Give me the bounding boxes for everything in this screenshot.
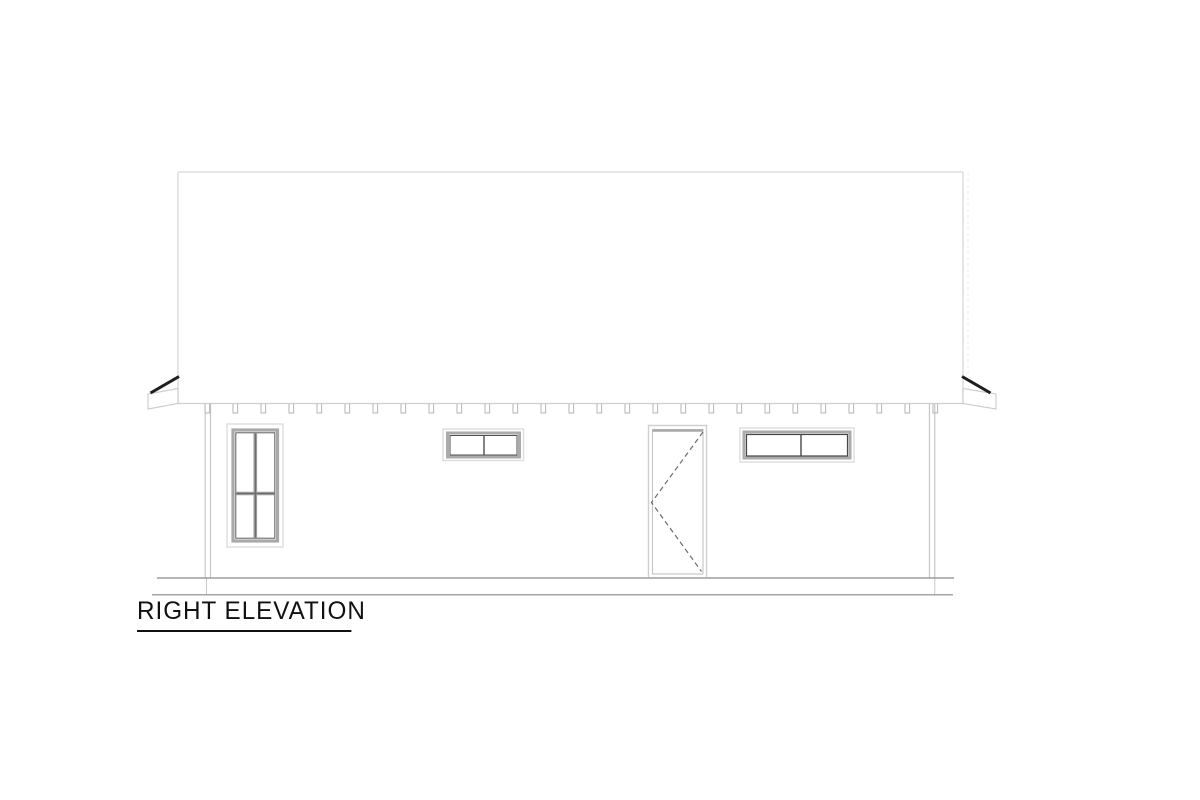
right-eave [962, 377, 996, 410]
rafter-tail [737, 404, 742, 413]
rafter-tail [597, 404, 602, 413]
rafter-tail [877, 404, 882, 413]
door [649, 426, 707, 578]
right-eave-box [963, 389, 996, 410]
door-swing-indicator [652, 432, 704, 572]
rafter-tail [373, 404, 378, 413]
rafter-tail [261, 404, 266, 413]
rafter-tail [849, 404, 854, 413]
rafter-tail [485, 404, 490, 413]
rafter-tail [541, 404, 546, 413]
rafter-tail [821, 404, 826, 413]
rafter-tail [401, 404, 406, 413]
rafter-tail [709, 404, 714, 413]
rafter-tail [429, 404, 434, 413]
rafter-tails [205, 404, 938, 413]
rafter-tail [625, 404, 630, 413]
rafter-tail [513, 404, 518, 413]
rafter-tail [793, 404, 798, 413]
rafter-tail [765, 404, 770, 413]
rafter-tail [317, 404, 322, 413]
window-middle-small [443, 429, 524, 461]
door-leaf-outline [653, 430, 704, 575]
left-corner-post [205, 404, 210, 595]
window-right-wide [740, 428, 854, 462]
right-elevation-drawing [0, 0, 1200, 800]
plan-sheet: RIGHT ELEVATION [0, 0, 1200, 800]
rafter-tail [457, 404, 462, 413]
window-left-tall [227, 424, 283, 547]
grade-lines [152, 578, 954, 595]
window-right-frame-band [744, 432, 850, 458]
rafter-tail [681, 404, 686, 413]
rafter-tail [233, 404, 238, 413]
roof-plane [178, 172, 968, 404]
rafter-tail [345, 404, 350, 413]
left-eave [148, 377, 179, 410]
door-outer-frame [649, 426, 707, 578]
window-right-sash-outline [747, 435, 848, 457]
right-corner-post [929, 404, 934, 595]
rafter-tail [905, 404, 910, 413]
drawing-title-label: RIGHT ELEVATION [137, 597, 351, 632]
rafter-tail [569, 404, 574, 413]
rafter-tail [653, 404, 658, 413]
rafter-tail [289, 404, 294, 413]
